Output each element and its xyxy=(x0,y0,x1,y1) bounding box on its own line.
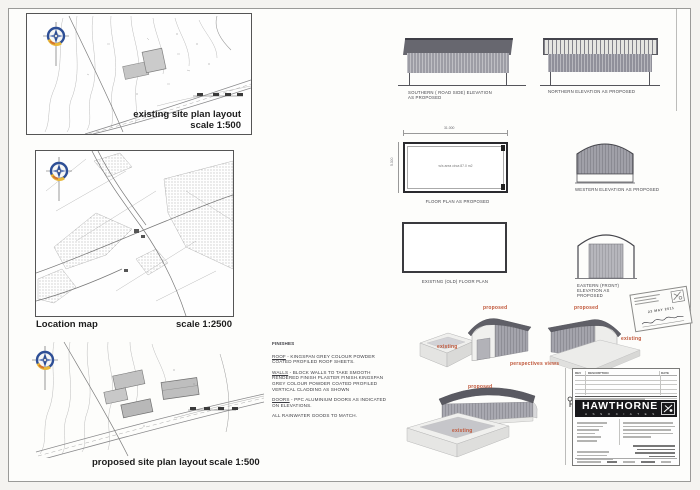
proposed-site-plan-panel: proposed site plan layout scale 1:500 xyxy=(24,340,266,470)
perspectives-caption: perspectives views xyxy=(510,361,559,367)
perspective-label-proposed-right: proposed xyxy=(574,305,598,311)
perspective-label-proposed-bottom: proposed xyxy=(468,384,492,390)
existing-site-plan-panel: existing site plan layout scale 1:500 xyxy=(26,13,252,135)
proposed-site-plan-title: proposed site plan layout xyxy=(92,457,207,468)
existing-floor-plan: EXISTING (OLD) FLOOR PLAN xyxy=(400,222,510,288)
description-col-header: DESCRIPTION xyxy=(586,371,659,375)
company-name: HAWTHORNE xyxy=(582,401,658,412)
compass-rose-icon xyxy=(30,346,60,390)
existing-site-plan-title: existing site plan layout xyxy=(133,109,241,120)
company-banner: HAWTHORNE A S S O C I A T E S xyxy=(575,400,677,417)
southern-elevation: SOUTHERN ( ROAD SIDE) ELEVATION AS PROPO… xyxy=(398,38,528,98)
existing-floor-plan-outline xyxy=(402,222,507,273)
western-elevation: WESTERN ELEVATION AS PROPOSED xyxy=(575,140,641,195)
compass-rose-icon xyxy=(41,22,71,66)
finishes-walls: WALLS - BLOCK WALLS TO TAKE SMOOTH RENDE… xyxy=(272,370,390,392)
eastern-elevation-drawing xyxy=(575,230,637,280)
stamp-crest-icon xyxy=(670,289,685,303)
dim-top: 31.000 xyxy=(444,126,454,130)
southern-elevation-label-line2: AS PROPOSED xyxy=(408,95,492,100)
perspective-label-proposed-mid: proposed xyxy=(483,305,507,311)
fold-line xyxy=(676,9,677,111)
existing-floor-plan-label: EXISTING (OLD) FLOOR PLAN xyxy=(400,279,510,284)
proposed-site-plan-scale: scale 1:500 xyxy=(209,457,260,468)
drawing-fields-placeholder xyxy=(575,458,677,465)
proposed-building-top-perspective xyxy=(462,303,532,361)
finishes-roof: ROOF - KINGSPAN GREY COLOUR POWDER COATE… xyxy=(272,354,390,365)
existing-pit-bottom-perspective xyxy=(405,411,511,459)
title-block: REV DESCRIPTION DATE HAWTHORNE A S S O C… xyxy=(572,368,680,466)
location-map-scale: scale 1:2500 xyxy=(160,319,232,330)
scale-bar xyxy=(193,93,243,96)
company-address-placeholder xyxy=(577,420,617,444)
northern-elevation: NORTHERN ELEVATION AS PROPOSED xyxy=(540,38,665,98)
perspective-label-existing-right: existing xyxy=(621,336,642,342)
perspective-label-existing-bottom: existing xyxy=(452,428,473,434)
location-map-title: Location map xyxy=(36,319,98,330)
western-elevation-drawing xyxy=(575,140,635,185)
finishes-doors: DOORS - PPC ALUMINIUM DOORS AS INDICATED… xyxy=(272,397,390,408)
western-elevation-label: WESTERN ELEVATION AS PROPOSED xyxy=(575,187,659,192)
company-subtitle: A S S O C I A T E S xyxy=(585,412,657,416)
proposed-site-plan-drawing xyxy=(24,340,266,458)
scale-bar xyxy=(188,407,238,410)
proposed-floor-plan-label: FLOOR PLAN AS PROPOSED xyxy=(390,199,525,204)
area-note: w/s area circa 87.0 m2 xyxy=(405,164,506,168)
finishes-notes: FINISHES ROOF - KINGSPAN GREY COLOUR POW… xyxy=(272,341,392,419)
perspective-label-existing-top: existing xyxy=(437,344,458,350)
dim-left: 5.300 xyxy=(390,158,394,167)
existing-site-plan-scale: scale 1:500 xyxy=(190,120,241,131)
proposed-floor-plan: 31.000 5.300 w/s area circa 87.0 m2 FLOO… xyxy=(390,126,525,208)
project-notes-placeholder xyxy=(623,420,675,440)
finishes-heading: FINISHES xyxy=(272,341,392,347)
project-title-placeholder xyxy=(631,443,675,459)
location-map-panel xyxy=(35,150,234,317)
floor-plan-outline: w/s area circa 87.0 m2 xyxy=(403,142,508,193)
date-col-header: DATE xyxy=(659,371,677,375)
company-logo-icon xyxy=(661,402,675,415)
eastern-elevation-label-line1: EASTERN (FRONT) ELEVATION AS xyxy=(577,283,643,293)
drawing-sheet: existing site plan layout scale 1:500 xyxy=(0,0,700,490)
northern-elevation-label: NORTHERN ELEVATION AS PROPOSED xyxy=(548,89,635,94)
revision-table: REV DESCRIPTION DATE xyxy=(575,371,677,395)
finishes-footer: ALL RAINWATER GOODS TO MATCH. xyxy=(272,413,392,419)
eastern-elevation: EASTERN (FRONT) ELEVATION AS PROPOSED xyxy=(575,230,643,296)
compass-rose-icon xyxy=(44,157,74,201)
